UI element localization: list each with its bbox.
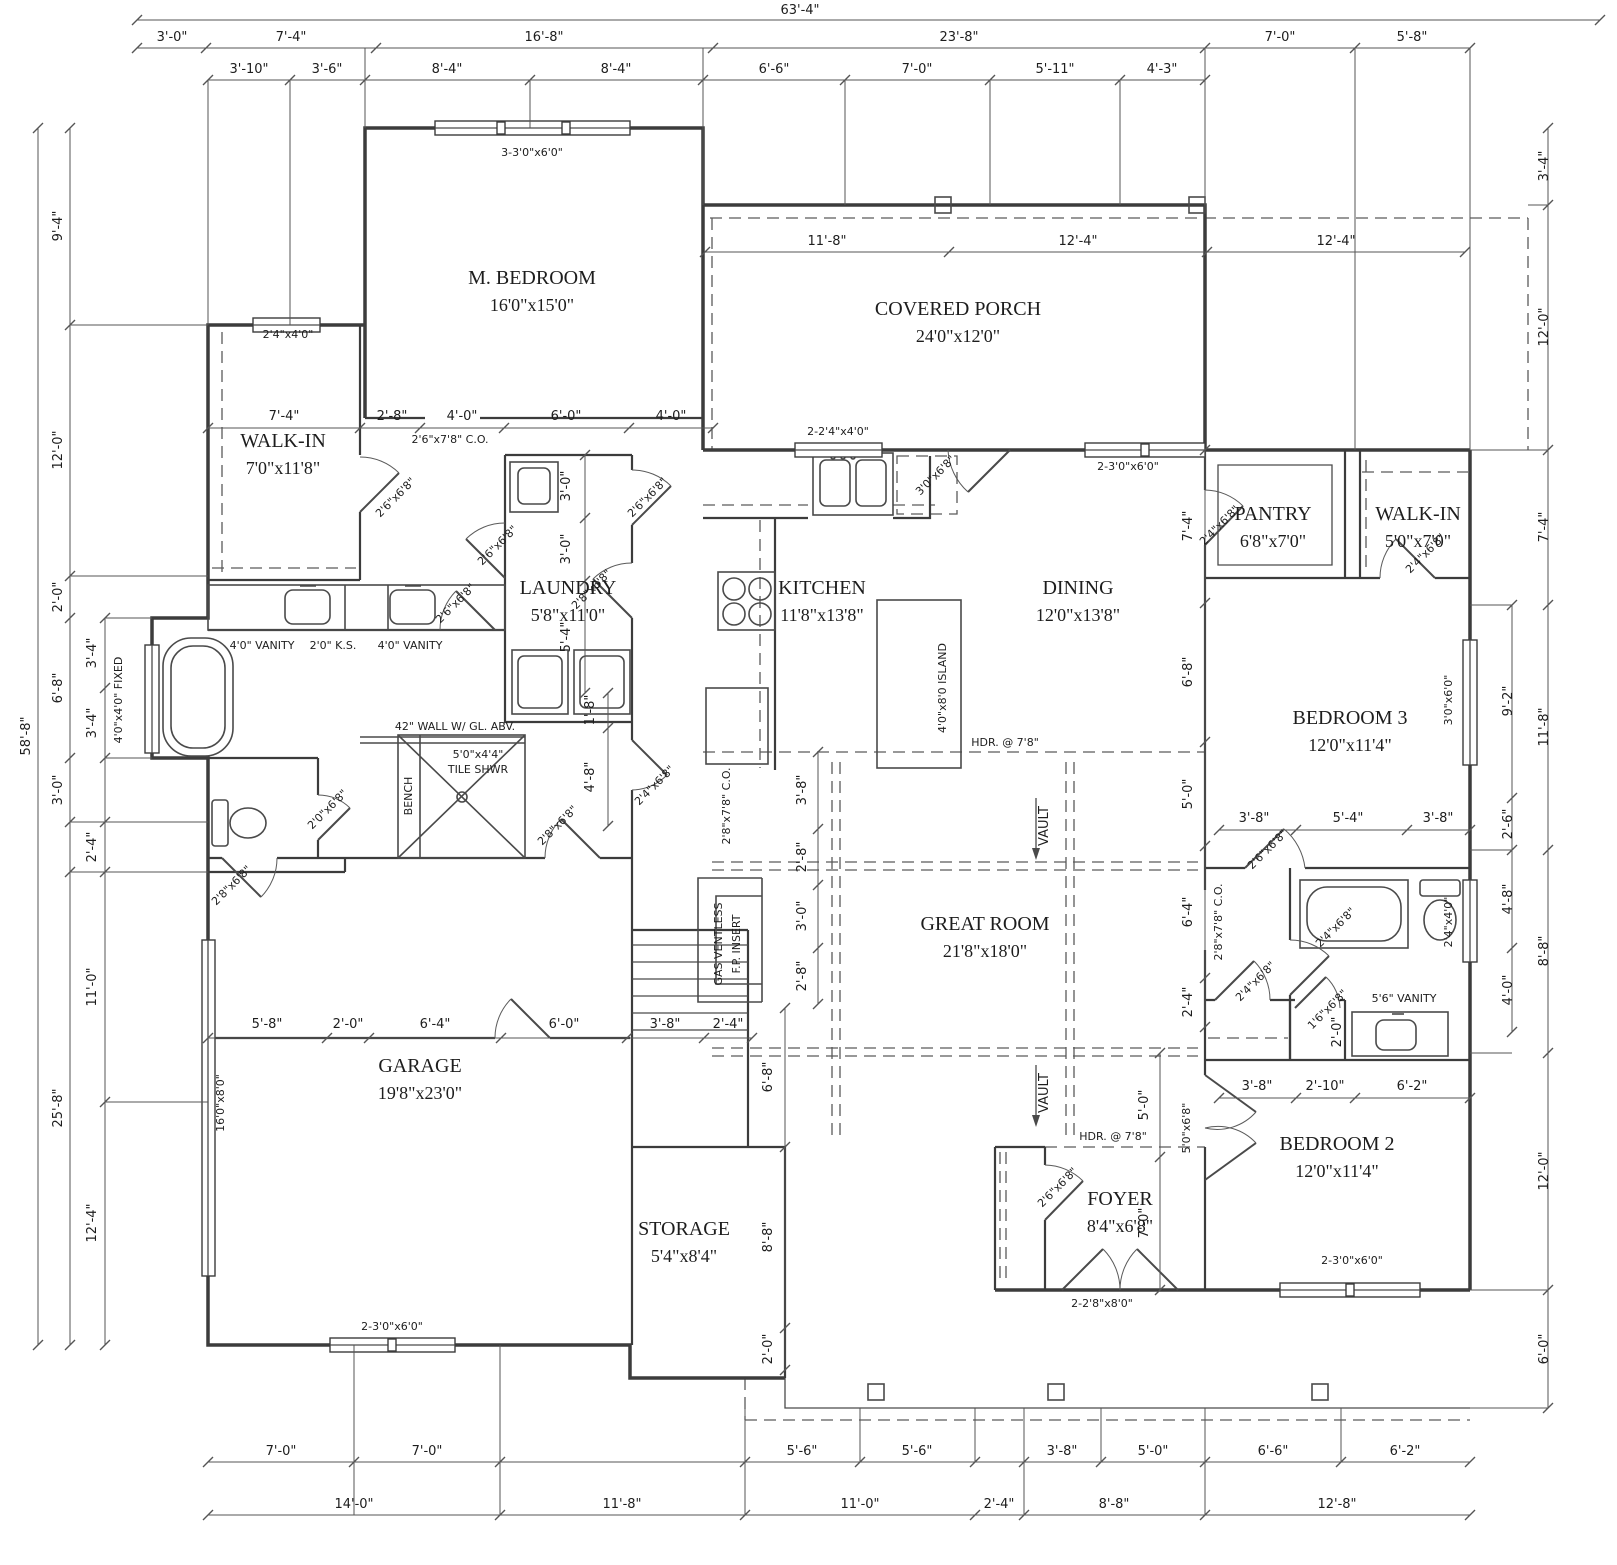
dim-label: 8'-4" [432, 62, 463, 77]
dim-label: 3'-4" [85, 638, 100, 669]
dim-label: 4'0"x8'0 ISLAND [936, 643, 949, 733]
dim-label: F.P. INSERT [730, 914, 743, 973]
dim-label: 2'8"x7'8" C.O. [720, 767, 733, 844]
dim-label: 16'0"x8'0" [214, 1074, 227, 1132]
dim-label: 3'0"x6'0" [1442, 675, 1455, 726]
dim-label: 42" WALL W/ GL. ABV. [395, 720, 515, 733]
dim-label: 6'-2" [1390, 1444, 1421, 1459]
dim-label: 11'-8" [1537, 707, 1552, 746]
dim-label: 7'-0" [902, 62, 933, 77]
dim-label: 3'-8" [1242, 1079, 1273, 1094]
dim-label: 12'-4" [1058, 234, 1097, 249]
dim-label: 6'-0" [551, 409, 582, 424]
dim-label: 2'-8" [377, 409, 408, 424]
dim-label: 12'-0" [1537, 307, 1552, 346]
dim-label: 6'-8" [51, 673, 66, 704]
room-label: STORAGE [638, 1218, 730, 1240]
fixtures [163, 197, 1460, 1400]
dim-label: 4'0"x4'0" FIXED [112, 657, 125, 744]
dim-label: 11'-0" [840, 1497, 879, 1512]
dim-label: 3'-8" [650, 1017, 681, 1032]
dim-label: 5'-4" [559, 622, 574, 653]
dim-label: 9'-2" [1501, 686, 1516, 717]
room-size-label: 12'0"x11'4" [1308, 735, 1392, 755]
room-label: WALK-IN [1375, 503, 1461, 525]
room-size-label: 6'8"x7'0" [1240, 531, 1306, 551]
dim-label: 2'8"x6'8" [209, 863, 254, 908]
dim-label: 4'0" VANITY [230, 639, 295, 652]
dim-label: 3'-0" [559, 534, 574, 565]
dim-label: 8'-4" [601, 62, 632, 77]
room-label: KITCHEN [778, 577, 866, 599]
room-label: COVERED PORCH [875, 298, 1041, 320]
windows [145, 121, 1477, 1352]
dim-label: 2'-0" [333, 1017, 364, 1032]
room-size-label: 5'4"x8'4" [651, 1246, 717, 1266]
porch-slab-edge [785, 1378, 1470, 1408]
dim-label: 2'4"x6'8" [1233, 959, 1278, 1004]
room-size-label: 21'8"x18'0" [943, 941, 1027, 961]
bath2-toilet-tank [1420, 880, 1460, 896]
dim-label: 2'0"x6'8" [305, 787, 350, 832]
dim-label: VAULT [1037, 806, 1052, 846]
dim-label: GAS VENTLESS [712, 902, 725, 985]
dim-label: 9'-4" [51, 211, 66, 242]
room-label: M. BEDROOM [468, 267, 596, 289]
dim-label: BENCH [402, 777, 415, 816]
dim-label: 6'-6" [1258, 1444, 1289, 1459]
dim-label: VAULT [1037, 1073, 1052, 1113]
dim-label: 12'-8" [1317, 1497, 1356, 1512]
room-size-label: 12'0"x13'8" [1036, 605, 1120, 625]
room-size-label: 12'0"x11'4" [1295, 1161, 1379, 1181]
dim-label: 7'-4" [276, 30, 307, 45]
dim-label: 2'6"x6'8" [1035, 1165, 1080, 1210]
dim-label: 3'-0" [157, 30, 188, 45]
dim-label: 3-3'0"x6'0" [501, 146, 563, 159]
room-label: WALK-IN [240, 430, 326, 452]
dim-label: 2'-4" [85, 832, 100, 863]
room-label: GREAT ROOM [920, 913, 1049, 935]
room-label: BEDROOM 3 [1292, 707, 1407, 729]
dim-label: 2'4"x4'0" [263, 328, 314, 341]
dim-label: 5'6" VANITY [1372, 992, 1437, 1005]
dim-label: 2'8"x7'8" C.O. [1212, 883, 1225, 960]
dim-label: 2'-0" [1330, 1017, 1345, 1048]
dim-label: 5'-0" [1137, 1090, 1152, 1121]
dim-label: 3'-0" [559, 471, 574, 502]
dim-label: 2'4"x6'8" [632, 763, 677, 808]
dim-label: 6'-8" [1181, 657, 1196, 688]
dim-label: 2'-0" [761, 1334, 776, 1365]
dim-label: 11'-0" [85, 967, 100, 1006]
dim-label: 11'-8" [602, 1497, 641, 1512]
dim-label: 2'0" K.S. [310, 639, 357, 652]
dim-label: 3'-0" [795, 901, 810, 932]
dim-label: 12'-0" [1537, 1151, 1552, 1190]
room-label: FOYER [1087, 1188, 1153, 1210]
dim-label: 5'0"x6'8" [1180, 1103, 1193, 1154]
dim-label: 2'6"x7'8" C.O. [411, 433, 488, 446]
dim-label: 2'6"x6'8" [433, 581, 478, 626]
dim-label: 7'-4" [269, 409, 300, 424]
dim-label: 4'-8" [1501, 884, 1516, 915]
dim-label: 7'-0" [412, 1444, 443, 1459]
dim-label: 2-2'8"x8'0" [1071, 1297, 1133, 1310]
dim-label: 8'-8" [1537, 936, 1552, 967]
dim-label: 3'-6" [312, 62, 343, 77]
dim-label: 4'-0" [656, 409, 687, 424]
dim-label: 2'-8" [795, 961, 810, 992]
dim-label: 2'-4" [1181, 987, 1196, 1018]
room-label: BEDROOM 2 [1279, 1133, 1394, 1155]
dim-label: 3'-4" [1537, 151, 1552, 182]
dim-label: 12'-0" [51, 430, 66, 469]
room-label: DINING [1042, 577, 1113, 599]
dim-label: 6'-6" [759, 62, 790, 77]
dim-label: 23'-8" [939, 30, 978, 45]
dim-label: 4'0" VANITY [378, 639, 443, 652]
dim-label: 7'-4" [1537, 512, 1552, 543]
master-toilet [230, 808, 266, 838]
dim-label: 8'-8" [1099, 1497, 1130, 1512]
dim-label: 2'6"x6'8" [475, 523, 520, 568]
dim-label: 3'-4" [85, 708, 100, 739]
dim-label: 4'-3" [1147, 62, 1178, 77]
dim-label: 6'-2" [1397, 1079, 1428, 1094]
dim-label: 6'-4" [420, 1017, 451, 1032]
dim-label: 2-3'0"x6'0" [361, 1320, 423, 1333]
dim-label: 4'-0" [1501, 975, 1516, 1006]
dim-label: 6'-4" [1181, 897, 1196, 928]
dim-label: 7'-0" [1137, 1208, 1152, 1239]
dim-label: 11'-8" [807, 234, 846, 249]
porch-post [1312, 1384, 1328, 1400]
dim-label: 12'-4" [1316, 234, 1355, 249]
dim-label: 2'6"x6'8" [1245, 827, 1290, 872]
room-size-label: 19'8"x23'0" [378, 1083, 462, 1103]
dim-label: 14'-0" [334, 1497, 373, 1512]
master-tub [163, 638, 233, 756]
dim-label: 25'-8" [51, 1088, 66, 1127]
dim-label: 6'-8" [761, 1062, 776, 1093]
dim-label: 4'-0" [447, 409, 478, 424]
dim-label: 3'-8" [1047, 1444, 1078, 1459]
dim-label: 63'-4" [780, 3, 819, 18]
dim-label: 2-2'4"x4'0" [807, 425, 869, 438]
dim-label: 3'-0" [51, 775, 66, 806]
room-size-label: 7'0"x11'8" [246, 458, 321, 478]
dim-label: 5'0"x4'4" [453, 748, 504, 761]
dim-label: 2'6"x6'8" [373, 475, 418, 520]
dim-label: 5'-0" [1138, 1444, 1169, 1459]
dim-label: 5'-8" [252, 1017, 283, 1032]
shower-glass-wall [360, 737, 525, 743]
dashed-lines [212, 218, 1528, 1420]
dim-label: 12'-4" [85, 1203, 100, 1242]
dim-label: 2'8"x6'8" [535, 803, 580, 848]
dim-label: 2'-0" [51, 582, 66, 613]
dim-label: 3'-8" [1239, 811, 1270, 826]
master-toilet-tank [212, 800, 228, 846]
refrigerator [706, 688, 768, 764]
room-label: GARAGE [378, 1055, 461, 1077]
floor-plan-sheet: M. BEDROOM16'0"x15'0"COVERED PORCH24'0"x… [0, 0, 1617, 1565]
dim-label: 3'-10" [229, 62, 268, 77]
dim-label: 6'-0" [549, 1017, 580, 1032]
dim-label: 7'-4" [1181, 511, 1196, 542]
dim-label: 7'-0" [266, 1444, 297, 1459]
dim-label: 7'-0" [1265, 30, 1296, 45]
porch-post [868, 1384, 884, 1400]
exterior-walls [152, 128, 1470, 1378]
dim-label: HDR. @ 7'8" [971, 736, 1039, 749]
dim-label: 2'-6" [1501, 809, 1516, 840]
dim-label: HDR. @ 7'8" [1079, 1130, 1147, 1143]
dim-label: 2-3'0"x6'0" [1097, 460, 1159, 473]
dim-label: 2'6"x6'8" [625, 475, 670, 520]
dim-label: 2'-10" [1305, 1079, 1344, 1094]
dim-label: 2'-4" [984, 1497, 1015, 1512]
dim-label: 4'-8" [583, 762, 598, 793]
porch-post [1048, 1384, 1064, 1400]
dim-label: 2'4"x4'0" [1442, 897, 1455, 948]
dim-label: 5'-6" [902, 1444, 933, 1459]
dim-label: 3'-8" [795, 775, 810, 806]
room-size-label: 11'8"x13'8" [780, 605, 864, 625]
dim-label: 2-3'0"x6'0" [1321, 1254, 1383, 1267]
dim-label: 5'-6" [787, 1444, 818, 1459]
washer [512, 650, 568, 714]
dim-label: 1'-8" [583, 695, 598, 726]
dim-label: 2'4"x6'8" [1313, 905, 1358, 950]
dim-label: 8'-8" [761, 1222, 776, 1253]
dim-label: 3'0"x6'8" [913, 453, 958, 498]
dim-label: 2'4"x6'8" [1197, 503, 1242, 548]
room-label: PANTRY [1234, 503, 1311, 525]
dim-label: TILE SHWR [447, 763, 509, 776]
dim-label: 5'-8" [1397, 30, 1428, 45]
dim-label: 2'-4" [713, 1017, 744, 1032]
dim-label: 6'-0" [1537, 1334, 1552, 1365]
dim-label: 58'-8" [19, 716, 34, 755]
room-size-label: 24'0"x12'0" [916, 326, 1000, 346]
dim-label: 3'-8" [1423, 811, 1454, 826]
dim-label: 16'-8" [524, 30, 563, 45]
dim-label: 5'-11" [1035, 62, 1074, 77]
floor-plan-drawing: M. BEDROOM16'0"x15'0"COVERED PORCH24'0"x… [0, 0, 1617, 1565]
dim-label: 5'-4" [1333, 811, 1364, 826]
room-size-label: 16'0"x15'0" [490, 295, 574, 315]
dim-label: 5'-0" [1181, 779, 1196, 810]
dim-label: 2'-8" [795, 842, 810, 873]
